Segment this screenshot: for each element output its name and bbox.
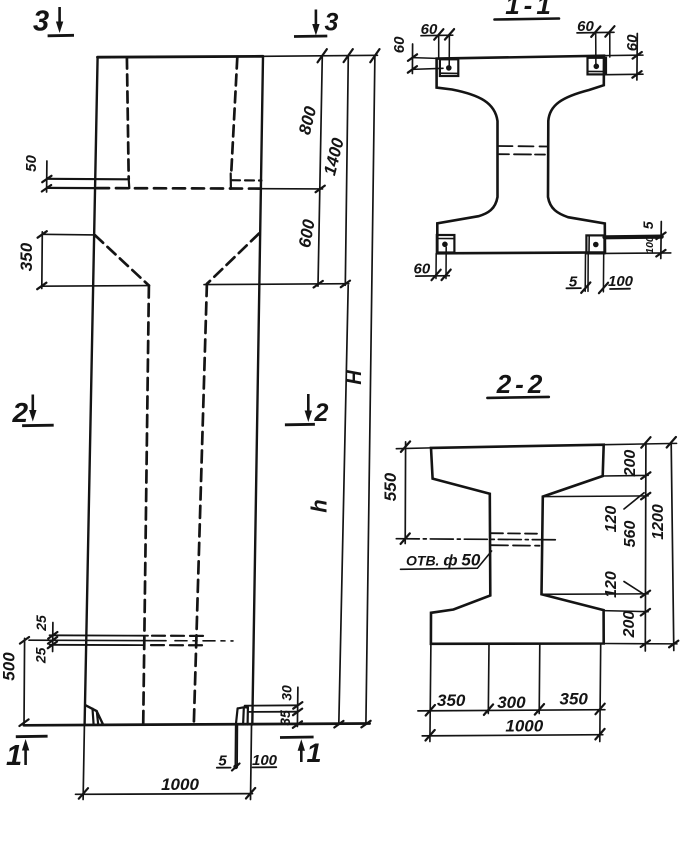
svg-text:60: 60 [421, 21, 438, 38]
svg-text:100: 100 [608, 273, 634, 290]
svg-text:5: 5 [640, 221, 656, 229]
svg-text:560: 560 [622, 521, 639, 548]
svg-text:600: 600 [295, 217, 319, 249]
svg-text:1-1: 1-1 [505, 0, 551, 20]
svg-text:1: 1 [307, 738, 322, 768]
svg-text:2: 2 [314, 399, 329, 427]
svg-text:5: 5 [569, 274, 578, 291]
svg-text:h: h [307, 499, 332, 512]
svg-text:30: 30 [279, 685, 295, 701]
svg-text:200: 200 [621, 611, 638, 639]
svg-text:120: 120 [603, 571, 620, 598]
svg-text:3: 3 [325, 9, 339, 37]
svg-text:120: 120 [603, 506, 620, 533]
svg-text:25: 25 [33, 615, 49, 632]
svg-text:300: 300 [497, 693, 526, 712]
svg-text:1000: 1000 [505, 717, 543, 736]
svg-text:550: 550 [381, 472, 400, 501]
svg-text:800: 800 [295, 104, 320, 137]
svg-text:1000: 1000 [161, 775, 199, 794]
svg-text:60: 60 [577, 18, 594, 35]
svg-text:2: 2 [12, 397, 29, 428]
svg-text:100: 100 [252, 752, 278, 769]
svg-text:350: 350 [560, 690, 589, 709]
svg-text:60: 60 [391, 36, 408, 53]
svg-text:60: 60 [624, 34, 641, 51]
svg-text:35: 35 [277, 710, 293, 726]
svg-text:25: 25 [32, 647, 48, 664]
svg-text:ОТВ. ф 50: ОТВ. ф 50 [406, 551, 481, 570]
svg-text:3: 3 [33, 6, 49, 38]
svg-text:1200: 1200 [650, 504, 667, 540]
svg-text:H: H [344, 370, 366, 385]
svg-text:1: 1 [6, 740, 22, 772]
svg-text:60: 60 [414, 261, 431, 278]
svg-text:350: 350 [437, 691, 466, 710]
svg-text:1400: 1400 [320, 135, 348, 177]
svg-text:100: 100 [644, 236, 656, 254]
svg-text:5: 5 [218, 753, 227, 770]
svg-text:500: 500 [0, 652, 19, 681]
svg-text:2-2: 2-2 [496, 369, 543, 399]
svg-text:350: 350 [17, 242, 36, 271]
svg-text:200: 200 [622, 450, 639, 478]
svg-text:50: 50 [23, 155, 40, 172]
